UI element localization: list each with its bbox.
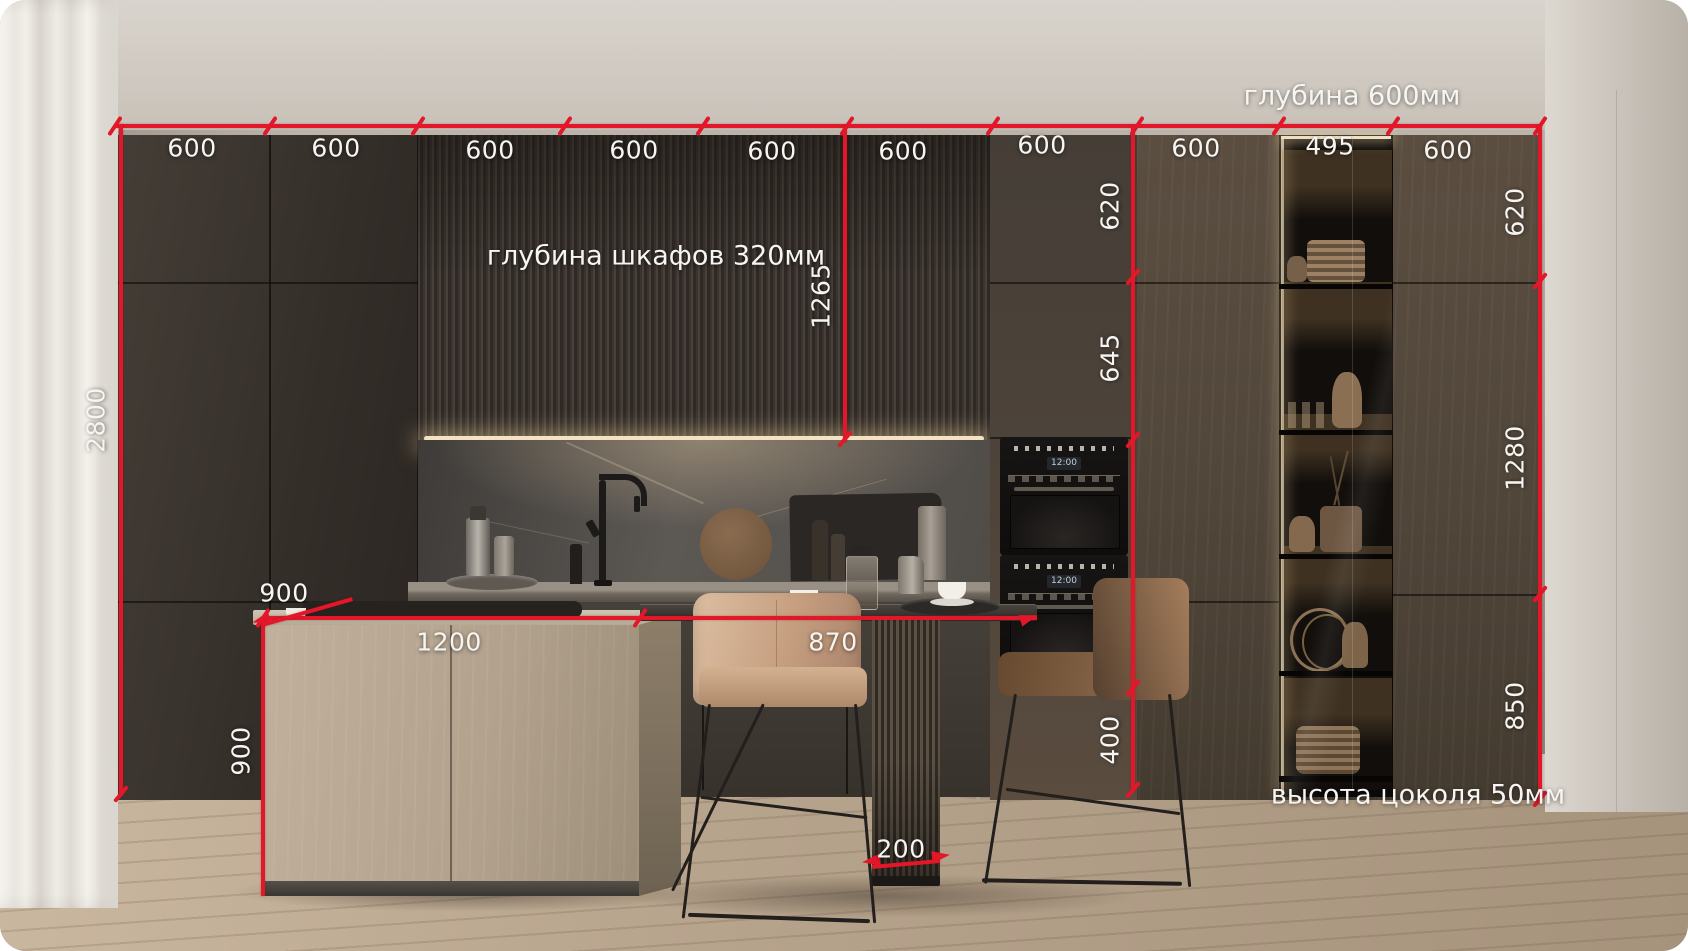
table-pedestal-base — [872, 876, 940, 886]
dimension-line-island-width — [263, 616, 1037, 620]
bottle — [831, 534, 845, 580]
soap-dispenser — [570, 544, 582, 584]
dim-width-label: 600 — [1017, 131, 1066, 160]
oven-display: 12:00 — [1047, 457, 1081, 470]
oven-control-strip — [1008, 475, 1120, 482]
dim-width-label: 600 — [1423, 136, 1472, 165]
dim-width-label: 495 — [1305, 132, 1354, 161]
cabinet-seam — [1393, 282, 1540, 284]
oven-display: 12:00 — [1047, 575, 1081, 588]
dim-upper-height-label: 1265 — [807, 263, 836, 329]
note-cabinet-depth: глубина 600мм — [1244, 81, 1461, 112]
left-chair-seat — [699, 667, 867, 707]
right-wall-corner-line — [1616, 90, 1617, 812]
dim-width-label: 600 — [465, 136, 514, 165]
dim-right-label: 850 — [1501, 681, 1530, 730]
oven-button-row — [1014, 446, 1114, 451]
dim-width-label: 600 — [167, 134, 216, 163]
round-cutting-board — [700, 508, 772, 580]
dim-width-label: 600 — [609, 136, 658, 165]
serving-tray — [446, 574, 538, 590]
ceiling — [0, 0, 1688, 138]
dim-width-label: 600 — [878, 137, 927, 166]
dim-table-base-label: 200 — [876, 835, 925, 864]
display-glass-edge — [1352, 139, 1353, 789]
moka-pot-lid — [470, 506, 486, 520]
dim-table-height-label: 870 — [808, 628, 857, 657]
island-door-seam — [450, 625, 452, 881]
dim-width-label: 600 — [747, 137, 796, 166]
faucet-tip — [634, 496, 640, 512]
display-glass-reflection — [1279, 135, 1393, 797]
window-curtain — [0, 0, 118, 908]
oven-handle — [1014, 487, 1114, 491]
oven-button-row — [1014, 564, 1114, 569]
saucer — [930, 598, 974, 606]
moka-pot — [466, 518, 490, 576]
note-plinth-height: высота цоколя 50мм — [1271, 780, 1565, 811]
dimension-line-left-height — [119, 124, 123, 796]
faucet-base — [594, 580, 612, 586]
cabinet-seam — [990, 282, 1137, 284]
creamer — [494, 536, 514, 576]
dimension-line-top — [115, 124, 1540, 128]
bottle — [812, 520, 828, 580]
dimension-arrow — [931, 849, 950, 863]
dim-island-depth-label: 900 — [259, 579, 308, 608]
dimension-line-island-height — [261, 618, 265, 896]
silver-pitcher — [898, 556, 924, 594]
dimension-line-upper-height — [843, 126, 847, 442]
dim-mid-label: 400 — [1096, 715, 1125, 764]
cabinet-seam — [115, 282, 418, 284]
note-upper-depth: глубина шкафов 320мм — [487, 241, 825, 272]
cabinet-seam — [1137, 282, 1279, 284]
cabinet-seam — [1393, 594, 1540, 596]
dim-island-width-label: 1200 — [416, 628, 482, 657]
french-press-lid — [849, 546, 873, 556]
oven-upper: 12:00 — [1000, 437, 1128, 555]
dim-mid-label: 645 — [1096, 333, 1125, 382]
right-chair-back — [1093, 578, 1189, 700]
dimension-line-right — [1538, 126, 1542, 803]
dim-width-label: 600 — [311, 134, 360, 163]
coffee-cup — [938, 582, 966, 599]
dim-right-label: 1280 — [1501, 425, 1530, 491]
island-plinth — [263, 881, 639, 896]
dim-mid-label: 620 — [1096, 181, 1125, 230]
kitchen-dimension-render: 12:00 12:00 — [0, 0, 1688, 951]
dim-right-label: 620 — [1501, 187, 1530, 236]
dim-total-height-label: 2800 — [82, 387, 111, 453]
oven-door-glass — [1010, 495, 1120, 549]
island-side — [639, 612, 681, 896]
dim-width-label: 600 — [1171, 134, 1220, 163]
dim-island-height-label: 900 — [227, 726, 256, 775]
